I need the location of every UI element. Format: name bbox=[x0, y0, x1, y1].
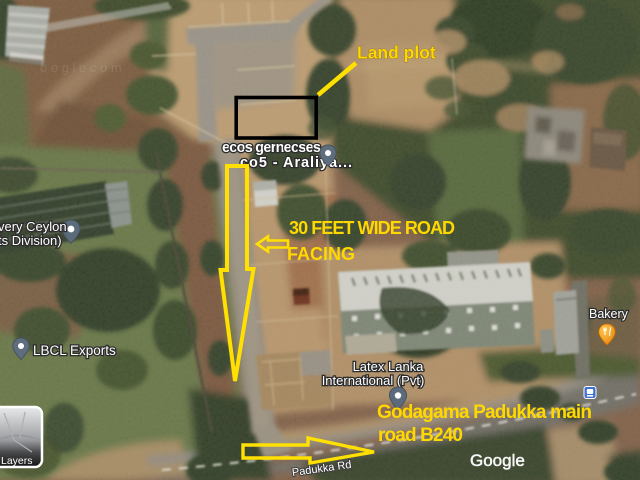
svg-text:Land plot: Land plot bbox=[357, 43, 436, 63]
svg-text:road B240: road B240 bbox=[378, 425, 463, 446]
svg-text:Bakery: Bakery bbox=[589, 307, 629, 321]
svg-text:Latex Lanka: Latex Lanka bbox=[353, 359, 425, 374]
svg-text:ts Division): ts Division) bbox=[0, 233, 62, 248]
svg-text:30 FEET WIDE ROAD: 30 FEET WIDE ROAD bbox=[289, 218, 455, 238]
svg-text:Godagama Padukka main: Godagama Padukka main bbox=[377, 402, 592, 423]
svg-text:LBCL Exports: LBCL Exports bbox=[33, 343, 116, 358]
svg-text:FACING: FACING bbox=[287, 244, 355, 264]
svg-text:very Ceylon: very Ceylon bbox=[0, 219, 67, 234]
svg-text:Google: Google bbox=[470, 451, 525, 470]
svg-text:ecos gernecses: ecos gernecses bbox=[222, 140, 321, 156]
svg-text:o o g l e c o m: o o g l e c o m bbox=[40, 60, 122, 75]
svg-text:International (Pvt): International (Pvt) bbox=[322, 373, 425, 388]
svg-text:Layers: Layers bbox=[1, 455, 33, 467]
